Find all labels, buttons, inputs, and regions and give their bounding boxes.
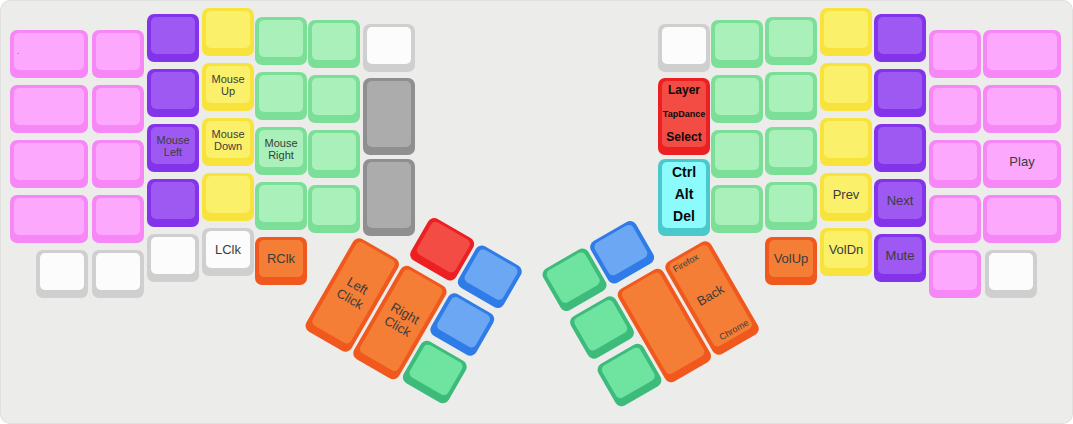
keycap-top: Mouse Right: [259, 130, 303, 167]
keycap-top: VolUp: [769, 240, 813, 277]
keycap-top: [151, 182, 195, 219]
keycap-top: [151, 72, 195, 109]
key-label: VolDn: [824, 242, 868, 257]
keycap-top: [662, 27, 706, 64]
key-blank[interactable]: [202, 173, 254, 221]
key-blank[interactable]: [765, 127, 817, 175]
keycap-top: [769, 75, 813, 112]
key-blank[interactable]: [147, 69, 199, 117]
key-blank[interactable]: [92, 250, 144, 298]
key-label: Mouse Right: [259, 136, 303, 161]
key-label: RClk: [259, 251, 303, 266]
key-blank[interactable]: [36, 250, 88, 298]
keycap-top: [572, 298, 629, 352]
key-blank[interactable]: [983, 195, 1061, 243]
keycap-top: .: [14, 33, 84, 70]
keycap-top: [312, 23, 356, 60]
keycap-top: [715, 188, 759, 225]
keycap-top: [40, 253, 84, 290]
keycap-top: [14, 198, 84, 235]
keycap-top: [96, 143, 140, 180]
keycap-top: [96, 33, 140, 70]
key-mouse-left[interactable]: Mouse Left: [147, 124, 199, 172]
key-label: Right Click: [375, 297, 428, 344]
key-blank[interactable]: [10, 85, 88, 133]
keycap-top: Mute: [878, 237, 922, 274]
key-blank[interactable]: [983, 30, 1061, 78]
key-label: Ctrl: [662, 165, 706, 181]
keycap-top: [14, 143, 84, 180]
key-blank[interactable]: [363, 24, 415, 72]
keymap-screenshot: .Mouse LeftMouse UpMouse DownMouse Right…: [0, 0, 1073, 424]
key-prev[interactable]: Prev: [820, 173, 872, 221]
key-blank[interactable]: [874, 14, 926, 62]
keycap-top: [715, 133, 759, 170]
key-label: Del: [662, 209, 706, 225]
keycap-top: [878, 17, 922, 54]
keycap-top: [769, 20, 813, 57]
keycap-top: [463, 248, 520, 302]
keycap-top: [933, 143, 977, 180]
keycap-top: [367, 27, 411, 64]
key-blank[interactable]: [308, 130, 360, 178]
key-mouse-up[interactable]: Mouse Up: [202, 63, 254, 111]
keycap-top: [987, 33, 1057, 70]
key-blank[interactable]: [308, 185, 360, 233]
keycap-top: [824, 66, 868, 103]
key-blank[interactable]: [92, 195, 144, 243]
key-label: Mouse Down: [206, 127, 250, 152]
key-blank[interactable]: [10, 195, 88, 243]
keycap-top: [206, 176, 250, 213]
key-label: Mute: [878, 248, 922, 263]
key-blank[interactable]: [985, 250, 1037, 298]
keycap-top: Mouse Left: [151, 127, 195, 164]
key-label: Prev: [824, 187, 868, 202]
keycap-top: [545, 251, 602, 305]
keycap-top: [312, 188, 356, 225]
key-blank[interactable]: [147, 234, 199, 282]
key-blank[interactable]: [10, 140, 88, 188]
key-ctrl-alt-del[interactable]: CtrlAltDel: [658, 159, 710, 236]
keycap-top: VolDn: [824, 231, 868, 268]
key-blank[interactable]: [147, 179, 199, 227]
keyboard-layout-board: .Mouse LeftMouse UpMouse DownMouse Right…: [0, 0, 1073, 424]
key-label: VolUp: [769, 251, 813, 266]
key-blank[interactable]: [765, 17, 817, 65]
key-label: Left Click: [327, 269, 380, 316]
keycap-top: Prev: [824, 176, 868, 213]
keycap-top: [14, 88, 84, 125]
keycap-top: [151, 17, 195, 54]
keycap-top: [933, 198, 977, 235]
keycap-top: [367, 81, 411, 147]
key-label: Back: [688, 278, 733, 313]
keycap-top: [824, 121, 868, 158]
key-label: Layer: [662, 84, 706, 97]
key-blank[interactable]: [929, 85, 981, 133]
key-lclk[interactable]: LClk: [202, 228, 254, 276]
key-label: Select: [662, 131, 706, 144]
keycap-top: [987, 88, 1057, 125]
keycap-top: [96, 198, 140, 235]
key-blank[interactable]: [929, 250, 981, 298]
key-period[interactable]: .: [10, 30, 88, 78]
keycap-top: Mouse Up: [206, 66, 250, 103]
key-blank[interactable]: [874, 124, 926, 172]
key-blank[interactable]: [765, 72, 817, 120]
key-mouse-right[interactable]: Mouse Right: [255, 127, 307, 175]
keycap-top: [987, 198, 1057, 235]
keycap-top: Play: [987, 143, 1057, 180]
key-blank[interactable]: [308, 20, 360, 68]
keycap-top: [259, 75, 303, 112]
keycap-top: [312, 133, 356, 170]
keycap-top: [259, 20, 303, 57]
keycap-top: [593, 223, 650, 277]
key-mouse-down[interactable]: Mouse Down: [202, 118, 254, 166]
key-blank[interactable]: [711, 130, 763, 178]
key-label: Mouse Left: [151, 133, 195, 158]
keycap-top: [933, 33, 977, 70]
keycap-top: [206, 11, 250, 48]
key-play[interactable]: Play: [983, 140, 1061, 188]
key-label: .: [17, 47, 19, 56]
keycap-top: [769, 185, 813, 222]
key-blank[interactable]: [363, 159, 415, 236]
keycap-top: [408, 343, 465, 397]
key-label: LClk: [206, 242, 250, 257]
key-label: TapDance: [662, 109, 706, 119]
key-blank[interactable]: [92, 140, 144, 188]
key-blank[interactable]: [820, 8, 872, 56]
key-voldn[interactable]: VolDn: [820, 228, 872, 276]
key-blank[interactable]: [255, 182, 307, 230]
key-blank[interactable]: [711, 75, 763, 123]
keycap-top: LClk: [206, 231, 250, 268]
keycap-top: [259, 185, 303, 222]
key-label: Chrome: [717, 317, 750, 342]
key-label: Play: [987, 154, 1057, 169]
key-label: Next: [878, 193, 922, 208]
key-blank[interactable]: [820, 118, 872, 166]
key-blank[interactable]: [711, 20, 763, 68]
keycap-top: [96, 88, 140, 125]
key-blank[interactable]: [92, 30, 144, 78]
key-blank[interactable]: [202, 8, 254, 56]
keycap-top: RClk: [259, 240, 303, 277]
key-blank[interactable]: [255, 17, 307, 65]
key-rclk[interactable]: RClk: [255, 237, 307, 285]
key-next[interactable]: Next: [874, 179, 926, 227]
keycap-top: [415, 220, 472, 274]
keycap-top: [933, 253, 977, 290]
keycap-top: [435, 295, 492, 349]
keycap-top: [824, 11, 868, 48]
key-label: Mouse Up: [206, 72, 250, 97]
keycap-top: [989, 253, 1033, 290]
key-blank[interactable]: [147, 14, 199, 62]
keycap-top: [715, 23, 759, 60]
keycap-top: [600, 346, 657, 400]
key-blank[interactable]: [363, 78, 415, 155]
keycap-top: [96, 253, 140, 290]
key-layer-tapdance-select[interactable]: LayerTapDanceSelect: [658, 78, 710, 155]
keycap-top: [367, 162, 411, 228]
key-volup[interactable]: VolUp: [765, 237, 817, 285]
keycap-top: [715, 78, 759, 115]
key-blank[interactable]: [929, 195, 981, 243]
key-blank[interactable]: [92, 85, 144, 133]
keycap-top: [312, 78, 356, 115]
keycap-top: [878, 72, 922, 109]
key-blank[interactable]: [308, 75, 360, 123]
key-blank[interactable]: [711, 185, 763, 233]
key-blank[interactable]: [765, 182, 817, 230]
key-blank[interactable]: [929, 30, 981, 78]
key-blank[interactable]: [255, 72, 307, 120]
key-blank[interactable]: [658, 24, 710, 72]
keycap-top: [878, 127, 922, 164]
key-label: Alt: [662, 187, 706, 203]
keycap-top: [769, 130, 813, 167]
keycap-top: [933, 88, 977, 125]
keycap-top: Mouse Down: [206, 121, 250, 158]
key-blank[interactable]: [820, 63, 872, 111]
keycap-top: [151, 237, 195, 274]
key-mute[interactable]: Mute: [874, 234, 926, 282]
keycap-top: CtrlAltDel: [662, 162, 706, 228]
keycap-top: LayerTapDanceSelect: [662, 81, 706, 147]
keycap-top: Next: [878, 182, 922, 219]
key-blank[interactable]: [929, 140, 981, 188]
key-blank[interactable]: [983, 85, 1061, 133]
key-blank[interactable]: [874, 69, 926, 117]
key-label: Firefox: [671, 252, 700, 274]
